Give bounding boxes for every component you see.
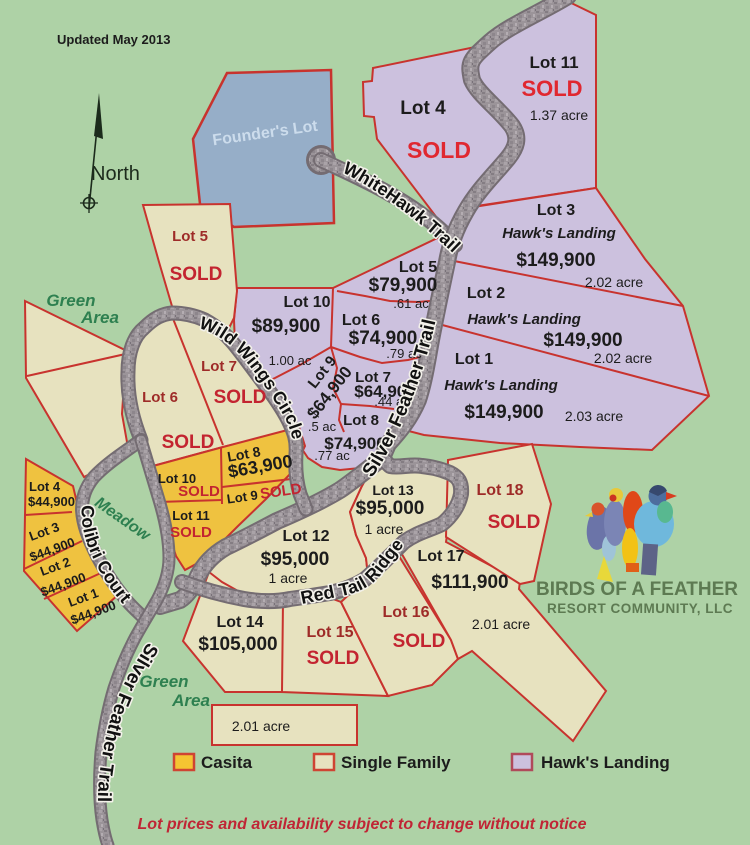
svg-text:SOLD: SOLD [407,137,471,163]
svg-text:Hawk's Landing: Hawk's Landing [444,377,558,394]
svg-text:Lot 7: Lot 7 [201,358,237,375]
svg-text:.77 ac: .77 ac [314,448,350,463]
svg-text:Lot 11: Lot 11 [529,53,578,72]
svg-text:1 acre: 1 acre [269,570,308,586]
svg-text:Lot prices and availability su: Lot prices and availability subject to c… [138,816,587,833]
svg-text:Lot 1: Lot 1 [455,351,493,368]
svg-text:North: North [91,163,140,185]
svg-text:$79,900: $79,900 [369,275,438,296]
svg-text:Lot 4: Lot 4 [29,479,61,494]
svg-text:Lot 11: Lot 11 [172,508,210,523]
svg-text:$95,000: $95,000 [261,549,330,570]
svg-text:SOLD: SOLD [307,648,360,669]
svg-text:Lot 14: Lot 14 [216,614,263,631]
svg-text:Hawk's Landing: Hawk's Landing [502,225,616,242]
svg-text:2.02 acre: 2.02 acre [594,350,653,366]
svg-text:$44,900: $44,900 [28,494,75,509]
svg-text:Lot 16: Lot 16 [382,604,429,621]
svg-text:Lot 6: Lot 6 [142,389,178,406]
svg-text:$89,900: $89,900 [252,316,321,337]
svg-text:Updated May 2013: Updated May 2013 [57,32,170,47]
svg-text:2.02 acre: 2.02 acre [585,274,644,290]
svg-text:Lot 3: Lot 3 [537,202,575,219]
svg-text:Lot 13: Lot 13 [372,482,413,498]
svg-text:SOLD: SOLD [170,264,223,285]
svg-text:1.00 ac: 1.00 ac [269,353,312,368]
svg-text:Area: Area [80,308,119,327]
svg-text:SOLD: SOLD [178,483,220,500]
svg-text:Lot 5: Lot 5 [172,228,208,245]
svg-text:BIRDS OF A FEATHER: BIRDS OF A FEATHER [536,579,738,600]
svg-text:2.01 acre: 2.01 acre [232,718,291,734]
svg-text:SOLD: SOLD [162,432,215,453]
svg-text:2.01 acre: 2.01 acre [472,616,531,632]
svg-text:Single Family: Single Family [341,753,451,772]
svg-text:Lot 8: Lot 8 [343,412,379,429]
svg-text:$105,000: $105,000 [198,634,277,655]
svg-text:RESORT COMMUNITY, LLC: RESORT COMMUNITY, LLC [547,601,733,616]
svg-text:.5 ac: .5 ac [308,419,337,434]
svg-text:Casita: Casita [201,753,253,772]
svg-text:Lot 10: Lot 10 [283,294,330,311]
svg-text:$149,900: $149,900 [516,250,595,271]
svg-text:Lot 4: Lot 4 [400,98,446,119]
svg-text:$149,900: $149,900 [464,402,543,423]
svg-text:SOLD: SOLD [488,512,541,533]
svg-text:SOLD: SOLD [170,524,212,541]
svg-text:Lot 6: Lot 6 [342,312,380,329]
svg-text:Lot 18: Lot 18 [476,482,523,499]
svg-text:$111,900: $111,900 [431,572,508,593]
svg-text:2.03 acre: 2.03 acre [565,408,624,424]
svg-text:$149,900: $149,900 [543,330,622,351]
svg-text:SOLD: SOLD [214,387,267,408]
svg-text:Lot 2: Lot 2 [467,285,505,302]
svg-text:.61 ac: .61 ac [393,296,429,311]
svg-text:SOLD: SOLD [521,76,582,101]
svg-text:Hawk's Landing: Hawk's Landing [467,311,581,328]
svg-text:1 acre: 1 acre [365,521,404,537]
svg-text:SOLD: SOLD [393,631,446,652]
svg-text:$95,000: $95,000 [356,498,425,519]
svg-text:1.37 acre: 1.37 acre [530,107,589,123]
svg-text:Area: Area [171,691,210,710]
svg-text:Lot 5: Lot 5 [399,259,437,276]
svg-text:Lot 15: Lot 15 [306,624,353,641]
svg-text:Lot 12: Lot 12 [282,528,329,545]
svg-text:Hawk's Landing: Hawk's Landing [541,753,670,772]
svg-text:Lot 17: Lot 17 [417,548,464,565]
